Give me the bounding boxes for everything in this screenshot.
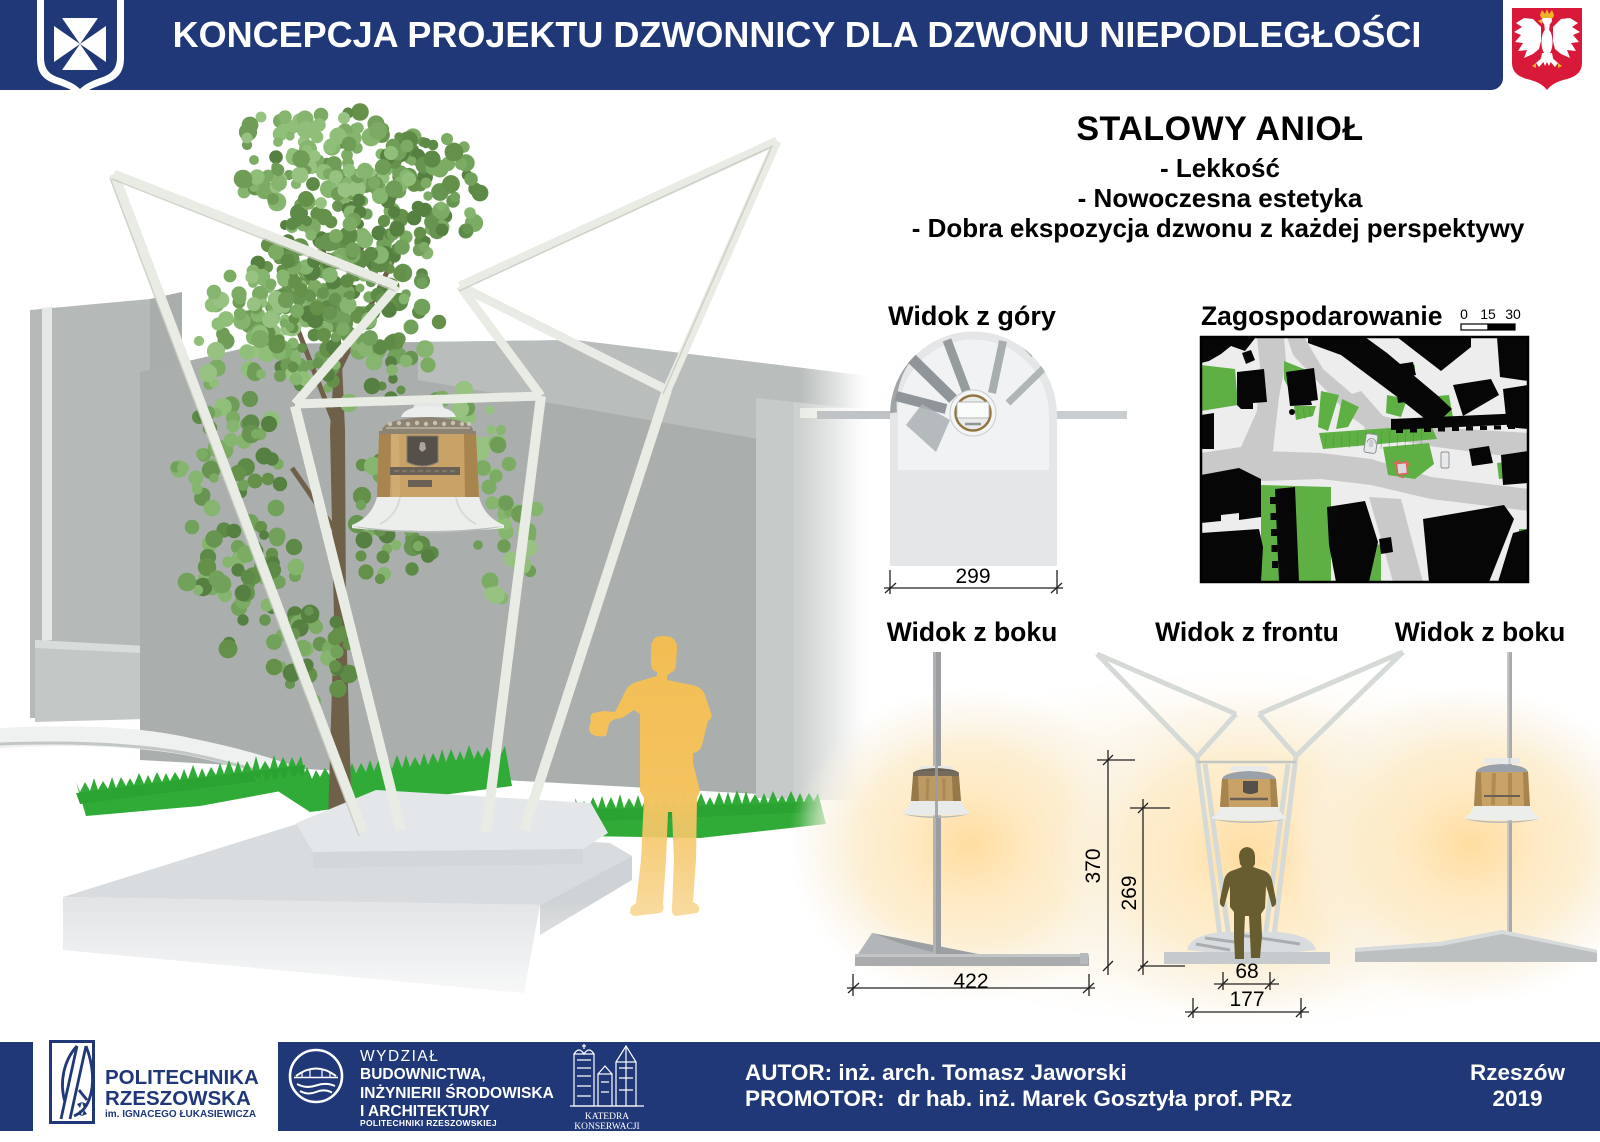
svg-text:269: 269 [1118,875,1141,910]
svg-text:Widok z boku: Widok z boku [1395,617,1566,647]
svg-text:0: 0 [1460,306,1468,322]
svg-text:177: 177 [1229,988,1264,1011]
svg-text:370: 370 [1082,848,1105,883]
svg-text:30: 30 [1505,306,1521,322]
svg-text:- Lekkość: - Lekkość [1160,153,1280,183]
svg-text:422: 422 [953,970,988,993]
svg-text:68: 68 [1235,960,1258,983]
svg-text:Widok z góry: Widok z góry [888,301,1056,331]
svg-text:- Dobra ekspozycja dzwonu z ka: - Dobra ekspozycja dzwonu z każdej persp… [912,213,1525,243]
svg-text:15: 15 [1480,306,1496,322]
svg-text:Zagospodarowanie: Zagospodarowanie [1201,301,1442,331]
svg-text:299: 299 [955,565,990,588]
svg-text:Widok z boku: Widok z boku [887,617,1058,647]
svg-text:Widok z frontu: Widok z frontu [1155,617,1339,647]
svg-text:- Nowoczesna estetyka: - Nowoczesna estetyka [1078,183,1363,213]
svg-text:STALOWY ANIOŁ: STALOWY ANIOŁ [1076,110,1363,148]
